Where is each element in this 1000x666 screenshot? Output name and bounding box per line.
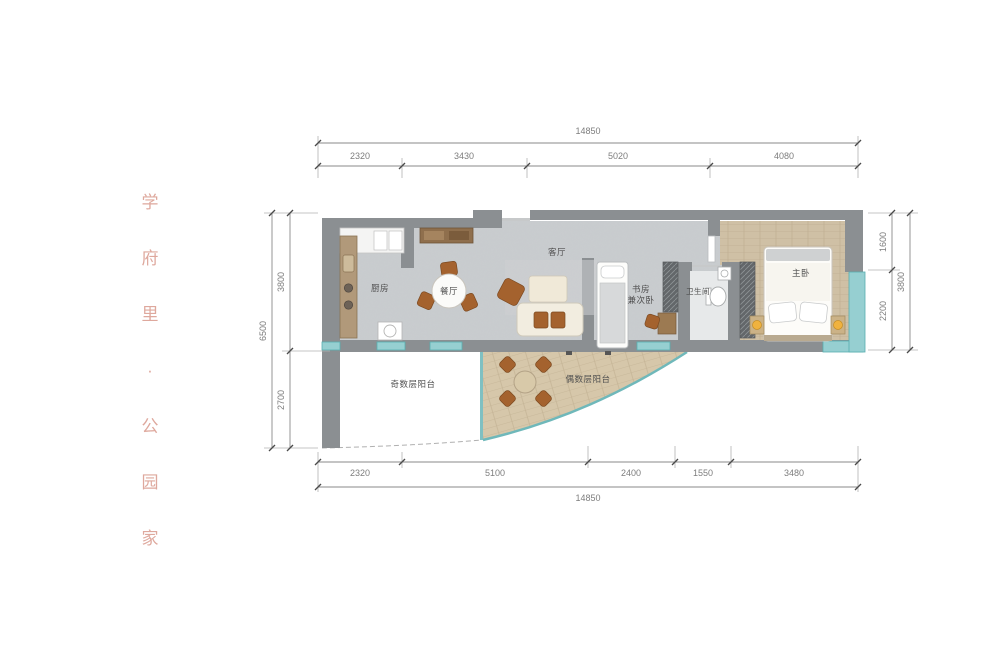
bathroom-label: 卫生间: [686, 286, 710, 296]
wall-study-right: [678, 262, 690, 340]
fridge: [374, 231, 387, 250]
dim-bottom-seg5: 3480: [784, 468, 804, 478]
stove-burner-2: [344, 301, 352, 309]
kitchen-label: 厨房: [371, 283, 389, 293]
wall-left: [322, 218, 340, 448]
dimensions-bottom: 2320 5100 2400 1550 3480 14850: [315, 446, 861, 503]
coffee-table: [529, 276, 567, 302]
sofa: [517, 303, 583, 336]
study-wardrobe: [663, 262, 678, 312]
bed-headboard: [764, 335, 832, 341]
wall-top-right: [530, 210, 863, 220]
single-bed-pillow: [601, 266, 624, 278]
stove-burner: [344, 284, 352, 292]
balcony-door-track-a: [566, 351, 572, 355]
window-living: [430, 342, 462, 350]
window-kitchen-corner: [322, 342, 340, 350]
balcony-divider-glass: [480, 352, 483, 440]
bed-runner: [766, 249, 830, 261]
bed-pillow: [768, 302, 797, 324]
dimensions-right: 1600 2200 3800: [868, 210, 918, 353]
wall-top-step: [473, 210, 502, 228]
sideboard-top: [424, 231, 444, 240]
dim-left-total: 6500: [258, 321, 268, 341]
living-label: 客厅: [548, 247, 566, 257]
dim-right-total: 3800: [896, 272, 906, 292]
dimensions-top: 14850 2320 3430 5020 4080: [315, 126, 861, 178]
window-study: [637, 342, 670, 350]
floorplan-svg: 厨房 餐厅 客厅 书房 兼次卧 卫生间 主卧 奇数层阳台 偶数层阳台 14850…: [0, 0, 1000, 666]
wall-bath-top-a: [678, 262, 692, 271]
lamp-left: [753, 321, 762, 330]
wall-right-upper: [845, 210, 863, 272]
wall-top-left: [322, 218, 480, 228]
bathroom-sink: [718, 267, 731, 280]
fridge-2: [389, 231, 402, 250]
dim-top-seg2: 3430: [454, 151, 474, 161]
dimensions-left: 3800 2700 6500: [258, 210, 330, 451]
dim-bottom-seg4: 1550: [693, 468, 713, 478]
sofa-cushion: [534, 312, 548, 328]
dim-bottom-seg3: 2400: [621, 468, 641, 478]
dim-bottom-total: 14850: [575, 493, 600, 503]
balcony-door-track-b: [605, 351, 611, 355]
dim-bottom-seg2: 5100: [485, 468, 505, 478]
dim-right-seg1: 1600: [878, 232, 888, 252]
sideboard-top-2: [449, 231, 469, 240]
window-master-right: [849, 272, 865, 352]
master-door-leaf: [708, 236, 715, 262]
dining-label: 餐厅: [440, 286, 458, 296]
master-label: 主卧: [792, 268, 810, 278]
wall-master-stub: [708, 220, 720, 236]
study-desk: [658, 313, 676, 334]
balcony-odd-dashed-edge: [322, 440, 481, 448]
dim-left-seg1: 3800: [276, 272, 286, 292]
dim-top-seg4: 4080: [774, 151, 794, 161]
lamp-right: [834, 321, 843, 330]
study-label-line2: 兼次卧: [627, 295, 654, 305]
toilet-bowl: [710, 287, 726, 306]
kitchen-sink: [343, 255, 354, 272]
dim-top-seg3: 5020: [608, 151, 628, 161]
balcony-even-label: 偶数层阳台: [565, 374, 610, 384]
dim-top-seg1: 2320: [350, 151, 370, 161]
dim-top-total: 14850: [575, 126, 600, 136]
single-bed-blanket: [600, 283, 625, 343]
window-dining: [377, 342, 405, 350]
bed-pillow-2: [799, 302, 828, 324]
study-label-line1: 书房: [632, 284, 650, 294]
sofa-cushion-2: [551, 312, 565, 328]
patio-table: [514, 371, 536, 393]
balcony-odd-label: 奇数层阳台: [390, 379, 435, 389]
bathroom-floor: [690, 271, 728, 340]
entrance-door-opening: [502, 218, 530, 221]
dim-bottom-seg1: 2320: [350, 468, 370, 478]
dim-right-seg2: 2200: [878, 301, 888, 321]
dim-left-seg2: 2700: [276, 390, 286, 410]
